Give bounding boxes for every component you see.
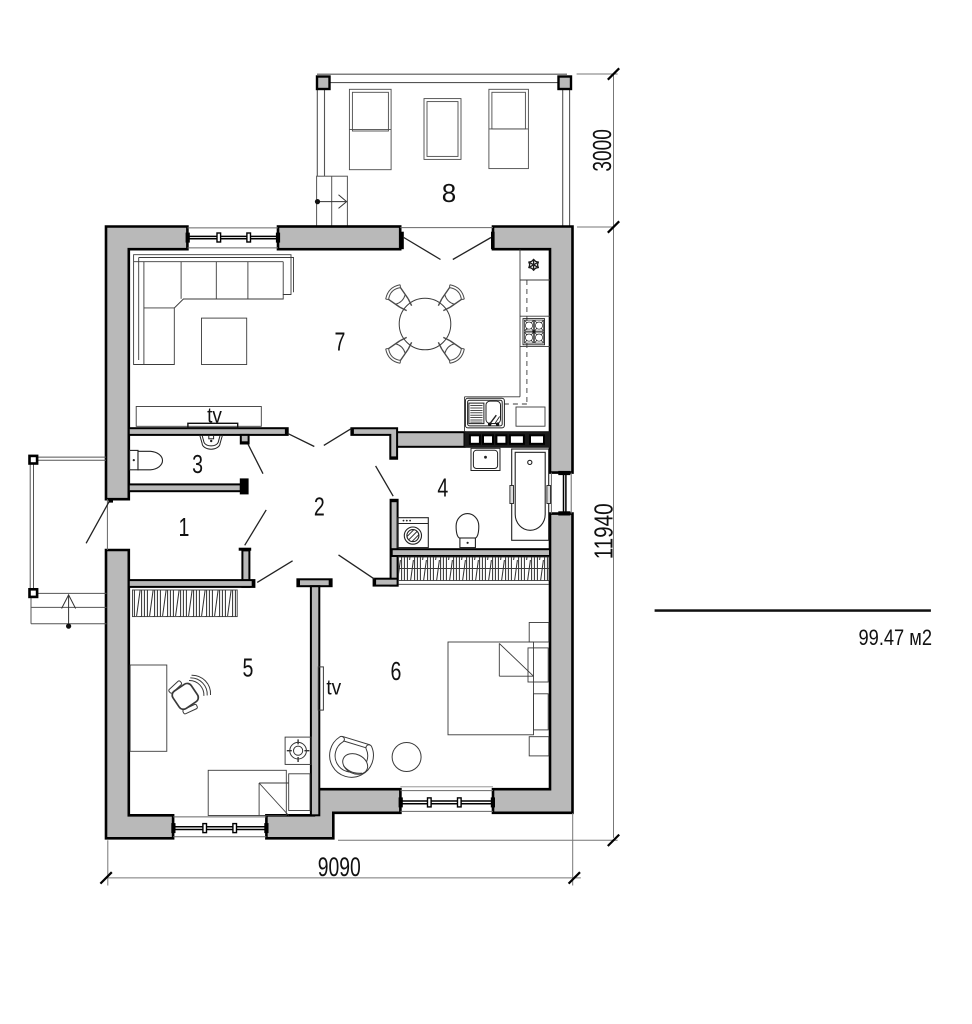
svg-text:tv: tv xyxy=(207,405,222,428)
svg-text:4: 4 xyxy=(437,473,448,503)
svg-text:2: 2 xyxy=(314,492,325,522)
svg-text:1: 1 xyxy=(179,512,190,542)
svg-text:99.47 м2: 99.47 м2 xyxy=(859,625,933,650)
svg-text:9090: 9090 xyxy=(318,852,361,882)
svg-text:3000: 3000 xyxy=(589,129,617,172)
svg-text:5: 5 xyxy=(243,653,254,683)
svg-text:3: 3 xyxy=(192,449,203,479)
svg-text:8: 8 xyxy=(442,178,456,208)
svg-text:11940: 11940 xyxy=(591,503,619,559)
svg-text:tv: tv xyxy=(326,677,341,700)
svg-text:7: 7 xyxy=(335,327,346,357)
svg-text:6: 6 xyxy=(390,656,401,686)
